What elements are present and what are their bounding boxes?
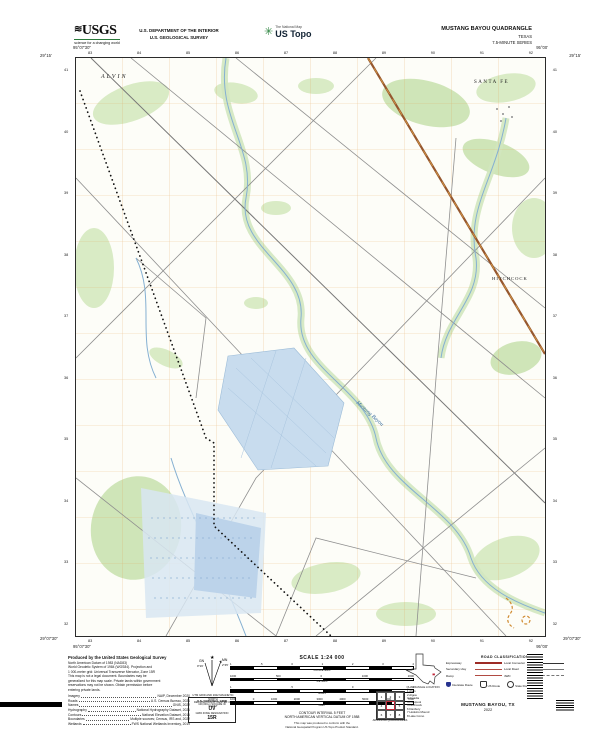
road-class-title: ROAD CLASSIFICATION [446,655,564,659]
adjoining-quads-grid: 1 2 3 4 5 6 7 8 [376,691,405,720]
grid-tick: 37 [553,314,557,318]
legend-label: Ramp [446,674,473,678]
corner-coord-tl-lat: 29°15' [40,53,52,58]
grid-north-label: GN [199,659,205,663]
scale-tick: 5000 [362,698,368,701]
standard-note-2: National Geospatial Program US Topo Prod… [230,726,414,730]
scale-title: SCALE 1:24 000 [230,655,414,661]
grid-tick: 37 [64,314,68,318]
grid-tick: 89 [382,51,386,55]
dotted-leader [79,703,171,707]
grid-tick: 39 [64,191,68,195]
scale-tick: .5 [260,663,262,666]
dotted-leader [86,717,130,721]
topo-map-canvas: ALVIN SANTA FE HITCHCOCK Mustang Bayou [76,58,545,636]
pond [194,513,261,598]
grid-tick: 83 [88,51,92,55]
production-credits: Produced by the United States Geological… [68,655,190,726]
corner-coord-tl-lon: 95°07'30" [73,45,91,50]
grid-tick: 88 [333,51,337,55]
scale-tick: 3 [382,663,384,666]
road-classification-legend: ROAD CLASSIFICATION Expressway Local Con… [446,655,564,688]
adjoin-cell: 2 [386,692,395,701]
adjoin-cell-center [386,701,395,710]
grid-tick: 85 [186,639,190,643]
expressway-line-sample [475,662,502,664]
legend-label: US Route [488,684,501,688]
grid-tick: 32 [553,622,557,626]
adjoin-name: 8 Lake Como [407,715,457,719]
quad-title: MUSTANG BAYOU QUADRANGLE [382,25,532,34]
grid-tick: 33 [553,560,557,564]
scale-tick: 1 [322,663,324,666]
dotted-leader [82,713,141,717]
scale-bar-row: 1.501234 KILOMETERS [230,663,414,672]
town-label-hitchcock: HITCHCOCK [492,276,528,281]
adjoin-cell: 1 [377,692,386,701]
grid-tick: 90 [431,51,435,55]
scale-tick: 1 [230,686,232,689]
adjoin-cell: 7 [386,710,395,719]
grid-tick: 35 [64,437,68,441]
map-collar-footer: Produced by the United States Geological… [0,648,600,725]
grid-tick: 41 [64,68,68,72]
grid-tick: 86 [235,639,239,643]
barcode-small [556,700,574,712]
quad-location-caption: QUADRANGLE LOCATION [396,686,450,689]
grid-tick: 87 [284,639,288,643]
ustopo-text: US Topo [275,29,311,39]
grid-tick: 91 [480,639,484,643]
sheet-name: MUSTANG BAYOU, TX [446,702,530,707]
scale-tick: 0 [352,686,354,689]
grid-ticks-bottom: 83848586878889909192 [88,639,533,643]
grid-tick: 90 [431,639,435,643]
crop-mark-bar [0,702,62,707]
adjoin-cell: 6 [377,710,386,719]
grid-tick: 83 [88,639,92,643]
grid-tick: 33 [64,560,68,564]
adjoin-cell: 8 [395,710,404,719]
sheet-footer-title: MUSTANG BAYOU, TX 2022 [446,702,530,712]
department-heading: U.S. DEPARTMENT OF THE INTERIOR U.S. GEO… [124,27,234,42]
corner-coord-br-lat: 29°07'30" [563,636,581,641]
dotted-leader [81,694,157,698]
legend-label: Expressway [446,661,473,665]
scale-tick: 2000 [294,698,300,701]
grid-tick: 85 [186,51,190,55]
produced-title: Produced by the United States Geological… [68,655,190,660]
grid-tick: 40 [553,130,557,134]
grid-ticks-left: 41403938373635343332 [64,68,68,626]
scale-tick: 2 [352,663,354,666]
interstate-shield-icon [446,682,451,687]
corner-coord-tr-lat: 29°15' [569,53,581,58]
scale-tick: 0 [320,675,322,678]
town-label-santa-fe: SANTA FE [474,80,509,85]
grid-tick: 38 [64,253,68,257]
series-label: 7.5-MINUTE SERIES [382,40,532,47]
datum-boilerplate: North American Datum of 1983 (NAD83)Worl… [68,661,190,692]
dept-line2: U.S. GEOLOGICAL SURVEY [124,34,234,41]
grid-tick: 87 [284,51,288,55]
grid-tick: 88 [333,639,337,643]
scale-bar-unit: KILOMETERS [230,670,414,673]
dotted-leader [88,708,136,712]
scale-tick: 1 [230,663,232,666]
grid-tick: 36 [64,376,68,380]
scale-tick: 0 [253,698,255,701]
usng-zone-id: 15R [189,715,235,721]
data-sources-list: Imagery NAIP, December 2020 Roads U.S. C… [68,694,190,726]
us-route-shield-icon [480,681,487,688]
legend-label: Interstate Route [452,683,473,687]
grid-tick: 35 [553,437,557,441]
adjoining-caption: ADJOINING QUADRANGLES [367,719,413,722]
grid-tick: 84 [137,639,141,643]
data-source-row: Wetlands FWS National Wetlands Inventory… [68,722,190,727]
grid-tick: 34 [64,499,68,503]
adjoin-cell: 3 [395,692,404,701]
map-frame: 95°07'30" 29°15' 95°00' 29°15' 95°07'30"… [75,57,546,637]
scale-bar-unit: METERS [230,681,414,684]
secondary-hwy-line-sample [475,669,502,670]
scale-tick: 1000 [230,675,236,678]
quad-location-marker [433,674,435,676]
grid-tick: 84 [137,51,141,55]
barcode [527,654,543,699]
true-north-star-icon: ★ [210,655,215,661]
dept-line1: U.S. DEPARTMENT OF THE INTERIOR [124,27,234,34]
grid-tick: 32 [64,622,68,626]
corner-coord-tr-lon: 95°00' [536,45,548,50]
ustopo-leaf-icon: ✳ [264,27,273,37]
corner-coord-bl-lat: 29°07'30" [40,636,58,641]
adjoin-cell: 5 [395,701,404,710]
grid-tick: 86 [235,51,239,55]
source-value: FWS National Wetlands Inventory, 2019 [132,722,190,727]
town-label-alvin: ALVIN [100,74,127,80]
legend-label: Secondary Hwy [446,667,473,671]
grid-tick: 41 [553,68,557,72]
usgs-wave-icon: ≋ [74,24,82,35]
usgs-tagline: science for a changing world [74,39,120,45]
ramp-line-sample [475,675,502,676]
grid-tick: 40 [64,130,68,134]
usgs-logo: ≋USGS science for a changing world [74,23,122,45]
scale-tick: 0 [291,663,293,666]
state-route-shield-icon [507,681,514,688]
scale-tick: 3000 [317,698,323,701]
adjoin-cell: 4 [377,701,386,710]
texas-outline-icon [406,654,441,684]
scale-tick: 1000 [362,675,368,678]
grid-tick: 92 [529,51,533,55]
scale-bar-row: 1000500010002000 METERS [230,675,414,684]
scale-tick: .5 [291,686,293,689]
grid-tick: 34 [553,499,557,503]
scale-tick: 4000 [339,698,345,701]
quadrangle-location-map [404,653,442,690]
dotted-leader [79,699,150,703]
grid-ticks-right: 41403938373635343332 [553,68,557,626]
sheet-title-block: MUSTANG BAYOU QUADRANGLE TEXAS 7.5-MINUT… [382,25,532,47]
usng-box: U.S. NATIONAL GRID 100,000-m SQUARE ID U… [188,697,236,723]
grid-tick: 91 [480,51,484,55]
magnetic-north-angle: 2°45' [222,663,229,667]
scale-tick: 1000 [271,698,277,701]
grid-tick: 39 [553,191,557,195]
grid-tick: 38 [553,253,557,257]
grid-tick: 89 [382,639,386,643]
grid-tick: 36 [553,376,557,380]
scale-tick: 1000 [230,698,236,701]
grid-tick: 92 [529,639,533,643]
grid-ticks-top: 83848586878889909192 [88,51,533,55]
sheet-year: 2022 [446,708,530,712]
grid-north-angle: 0°16' [197,664,204,668]
source-label: Wetlands [68,722,82,727]
usgs-logo-text: USGS [82,23,117,38]
ustopo-logo: ✳ The National Map US Topo [264,25,312,39]
magnetic-north-label: MN [222,658,228,662]
scale-tick: 500 [276,675,281,678]
